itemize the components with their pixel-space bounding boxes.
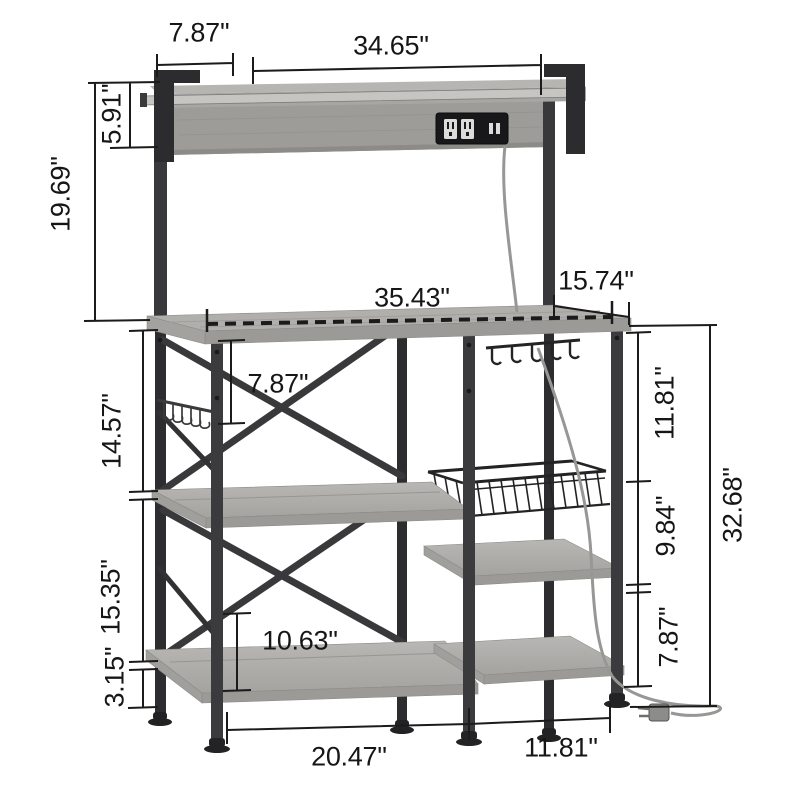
dim-left-upper-gap: 14.57''	[99, 393, 126, 469]
dim-lower-shelf-gap: 10.63''	[262, 628, 338, 655]
dim-hutch-board-height: 5.91''	[99, 83, 126, 144]
dim-under-worktop-clearance: 7.87''	[247, 371, 308, 398]
dim-hutch-height: 19.69''	[48, 156, 75, 232]
dim-right-lower-gap: 7.87''	[656, 606, 683, 667]
bakers-rack	[140, 64, 721, 753]
hutch	[140, 64, 586, 320]
dim-bottom-left-width: 20.47''	[311, 744, 387, 771]
dim-worktop-depth: 15.74''	[558, 268, 634, 295]
dim-lower-total-height: 32.68''	[720, 467, 747, 543]
dimension-diagram: 7.87'' 34.65'' 5.91'' 19.69'' 35.43'' 15…	[0, 0, 800, 800]
dim-top-shelf-depth: 7.87''	[168, 20, 229, 47]
middle-left-shelf	[152, 482, 468, 528]
hutch-right-post	[543, 82, 555, 312]
power-outlet-strip	[436, 113, 508, 144]
dim-right-mid-gap: 9.84''	[653, 495, 680, 556]
dim-left-mid-gap: 15.35''	[98, 559, 125, 635]
dim-left-foot-height: 3.15''	[102, 646, 129, 707]
dim-top-shelf-width: 34.65''	[353, 33, 429, 60]
mug-hooks	[486, 340, 580, 364]
dim-right-upper-gap: 11.81''	[652, 366, 679, 440]
dim-bottom-right-width: 11.81''	[524, 735, 598, 762]
dim-worktop-width: 35.43''	[374, 285, 450, 312]
